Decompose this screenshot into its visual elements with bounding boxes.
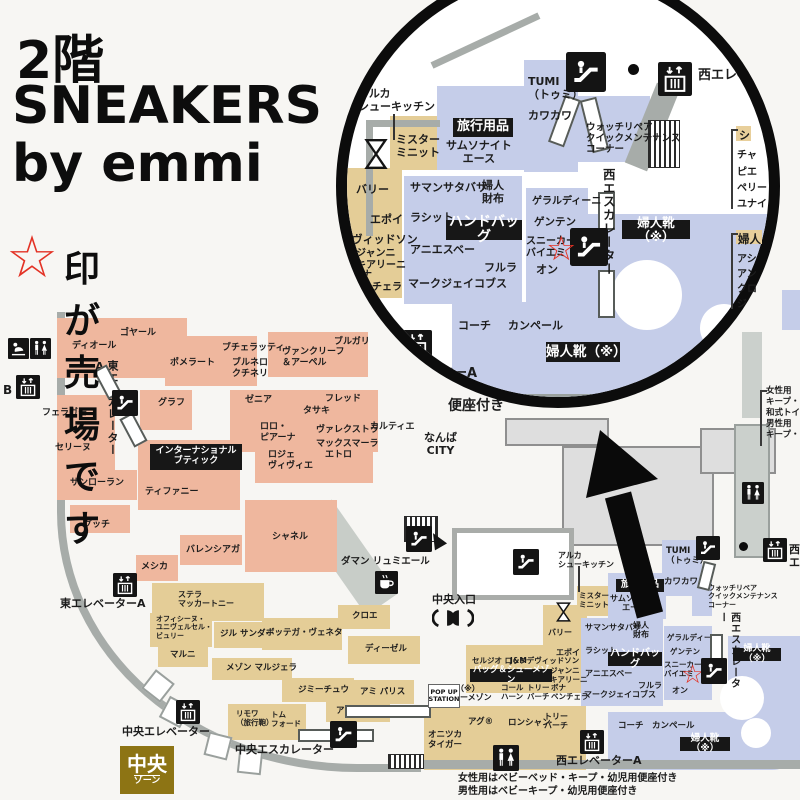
handbag-label: ハンドバッグ	[608, 652, 662, 666]
shop-brunello: ブルネロ クチネリ	[232, 358, 268, 379]
shoe-list-item: ペリー	[737, 179, 767, 194]
shop-gherardini: ゲラルディーニ	[532, 196, 601, 208]
shop-jimmychoo: ジミーチュウ	[298, 685, 349, 695]
brand-title-line1: SNEAKERS	[12, 76, 322, 136]
shop-roger: ロジェ ヴィヴィエ	[268, 450, 313, 471]
shop-epoi: エポイ	[370, 214, 403, 227]
central-zone-kana: ゾーン	[134, 775, 161, 787]
shop-toryburch2: トリー バーチ	[527, 684, 550, 702]
east-elevator-a-icon	[113, 573, 137, 597]
shop-officine: オフィシーヌ・ ユニヴェルセル・ ビュリー	[156, 615, 212, 640]
west-elevator-label-cut: 西エ	[789, 544, 800, 570]
west-elevator-label: 西エレベーター	[698, 68, 780, 83]
shop-marcjacobs: マークジェイコブス	[584, 690, 656, 699]
ladies-shoes-label-2: 婦人靴（※）	[733, 648, 781, 661]
brand-title-line2: by emmi	[12, 134, 263, 194]
shop-cartier: カルティエ	[370, 422, 414, 433]
right-restroom-note: 女性用 キープ・ 和式トイ 男性用 キープ・	[766, 386, 800, 441]
bag-shoe-maison-label: バッグ＆シューメゾン	[470, 669, 552, 682]
floor-cutout	[612, 260, 682, 330]
west-elevator-a-label: 西エレベーターA	[556, 755, 642, 768]
shop-tiffany: ティファニー	[145, 487, 198, 498]
zone-fragment	[782, 290, 800, 330]
shop-arca: アルカ シューキッチン	[358, 88, 435, 114]
shop-pomellato: ポメラート	[170, 358, 215, 369]
floor-map-page: 2階 SNEAKERS by emmi ☆ 印が売場です なんば CITY 便座…	[0, 0, 800, 800]
east-elevator-b-icon	[16, 375, 40, 399]
magnifier-circle: アルカ シューキッチン ミスター ミニット 旅行用品 サムソナイト エース TU…	[336, 0, 780, 408]
west-elevator-icon	[658, 62, 692, 96]
central-escalator-icon	[330, 721, 357, 748]
zone-luxury	[140, 390, 192, 430]
ladies-shoes-list-item: アシ	[737, 250, 757, 265]
west-escalator-icon	[701, 658, 727, 684]
east-elevator-b-label: B	[3, 383, 12, 397]
restroom-icon	[493, 745, 519, 771]
shop-coach: コーチ	[458, 320, 491, 333]
wall	[366, 120, 440, 127]
shop-ugg: アグ®	[468, 717, 493, 727]
floor-cutout	[700, 304, 748, 352]
shop-toryburch: トリー バーチ	[544, 712, 568, 731]
ladies-shoes-list-item: アン	[737, 265, 757, 280]
shoe-list-item: チャ	[737, 146, 757, 161]
shop-camper: カンペール	[508, 320, 563, 333]
wall	[452, 394, 774, 401]
shop-balenciaga: バレンシアガ	[186, 545, 240, 556]
shop-ami: アミ パリス	[360, 687, 405, 697]
shop-colehaan: コール ハーン	[501, 684, 524, 702]
ladies-shoes-label-2: 婦人靴（※）	[546, 342, 620, 362]
shop-marcjacobs: マークジェイコブス	[408, 278, 507, 291]
sneakers-location-star-icon: ☆	[546, 232, 576, 266]
shop-agnesb: アニエスベー	[410, 244, 475, 257]
fujin-saifu: 婦人 財布	[633, 621, 649, 640]
shop-maxmara: マックスマーラ	[316, 439, 378, 450]
east-escalator-icon	[112, 390, 138, 416]
watch-repair-corner: ウォッチリペア クイックメンテナンス コーナー	[708, 584, 778, 609]
shop-samsonite: サムソナイト エース	[446, 140, 512, 166]
ladies-shoes-list-item: クロ	[737, 280, 757, 295]
shop-genten: ゲンテン	[534, 216, 576, 228]
fujin-saifu: 婦人 財布	[482, 180, 504, 206]
shop-vancleef: ヴァンクリーフ ＆アーペル	[282, 347, 344, 368]
floor-cutout	[741, 718, 771, 748]
intl-boutique-label: インターナショナル ブティック	[150, 444, 242, 470]
kiosk-marker-icon	[364, 138, 388, 170]
ladies-shoes-list-item: ジ	[737, 295, 747, 310]
coffee-cup-icon	[375, 571, 398, 594]
shop-bona: ボナ ベンチェラ	[551, 684, 589, 702]
escalator-icon	[406, 526, 432, 552]
shop-marni: マルニ	[170, 650, 196, 660]
shop-bottega: ボッテガ・ヴェネタ	[266, 628, 343, 638]
east-elevator-a-label: 東エレベーターA	[60, 598, 146, 611]
escalator-track	[345, 705, 431, 718]
central-zone-kanji: 中央	[127, 753, 167, 775]
shop-chanel: シャネル	[272, 532, 308, 543]
shoe-list-item: ユナイ	[737, 195, 767, 210]
shop-epoi: エポイ	[556, 648, 580, 657]
central-entrance-label: 中央入口	[432, 594, 476, 607]
shop-furla: フルラ	[484, 262, 517, 275]
shop-etro: エトロ	[325, 450, 352, 461]
west-elevator-a-icon	[580, 730, 604, 754]
shop-goyard: ゴヤール	[120, 328, 156, 339]
shop-tasaki: タサキ	[303, 406, 330, 417]
shop-rimowa: リモワ （旅行鞄）	[236, 710, 274, 728]
shoe-list-item: ピエ	[737, 163, 757, 178]
shop-stella: ステラ マッカートニー	[178, 590, 234, 609]
legend-star-icon: ☆	[6, 228, 58, 286]
namba-city-label: なんば CITY	[424, 432, 457, 458]
shop-messika: メシカ	[141, 562, 168, 573]
shop-bally: バリー	[548, 628, 572, 637]
shop-mrminit: ミスター ミニット	[396, 134, 440, 160]
column-dot	[628, 64, 639, 75]
shop-margiela: メゾン マルジェラ	[226, 663, 297, 673]
shop-zegna: ゼニア	[245, 395, 272, 406]
benza-note: 便座付き	[448, 398, 504, 415]
shop-agnesb: アニエスベー	[585, 669, 632, 678]
legend-note: 印が売場です	[64, 240, 100, 552]
central-elevator-icon	[176, 700, 200, 724]
restroom-icon	[30, 338, 51, 359]
watch-repair-corner: ウォッチリペア クイックメンテナンス コーナー	[586, 122, 680, 156]
west-elevator-icon	[763, 538, 787, 562]
restroom-icon	[742, 482, 764, 504]
shop-chloe: クロエ	[352, 611, 378, 621]
shop-tomford: トム フォード	[271, 711, 301, 729]
shop-samantha: サマンサタバサ	[410, 182, 487, 195]
handbag-label: ハンドバッグ	[446, 220, 522, 240]
shop-onitsuka: オニツカ タイガー	[428, 730, 462, 750]
restroom-note-male: 男性用はベビーキープ・幼児用便座付き	[458, 786, 637, 798]
shop-diesel: ディーゼル	[365, 644, 407, 654]
ladies-shoes-list-header: 婦人	[738, 231, 761, 247]
column-dot	[739, 542, 748, 551]
shoe-list-header: シ	[739, 127, 750, 143]
shop-loro: ロロ・ ピアーナ	[260, 422, 295, 443]
shop-bona: ボナ ベンチェラ	[352, 270, 402, 294]
west-elevator-a-icon	[402, 330, 432, 360]
shop-kawakawa: カワカワ	[528, 110, 572, 123]
stairs-hatch	[388, 754, 424, 769]
shop-genten: ゲンテン	[670, 648, 700, 657]
pointer-arrow	[530, 410, 700, 620]
shop-gianni: ジャンニ キアリーニ	[356, 248, 406, 272]
ladies-shoes-label: 婦人靴（※）	[680, 737, 730, 751]
popup-station-box: POP UP STATION	[428, 684, 460, 708]
travel-goods-label: 旅行用品	[453, 118, 513, 137]
shop-buccellati: ブチェラッティ	[222, 343, 284, 354]
shop-camper: カンペール	[652, 721, 695, 731]
shop-bally: バリー	[356, 184, 389, 197]
entrance-doors-icon	[432, 608, 474, 628]
central-elevator-label: 中央エレベーター	[122, 726, 210, 739]
ladies-shoes-label: 婦人靴（※）	[622, 220, 690, 239]
restroom-note-female: 女性用はベビーベッド・キープ・幼児用便座付き	[458, 773, 677, 785]
baby-care-icon	[8, 338, 29, 359]
central-zone-box: 中央 ゾーン	[120, 746, 174, 794]
central-escalator-label: 中央エスカレーター	[235, 744, 334, 757]
shop-graff: グラフ	[158, 398, 185, 409]
bag-shoe-maison-label-cut: ン	[336, 244, 354, 264]
damann-label: ダマン リュミエール	[341, 556, 430, 567]
escalator-icon	[566, 52, 606, 92]
west-elevator-a-label: 西エレベーターA	[376, 366, 477, 381]
shop-coach: コーチ	[618, 721, 644, 731]
leader-line	[393, 114, 395, 140]
